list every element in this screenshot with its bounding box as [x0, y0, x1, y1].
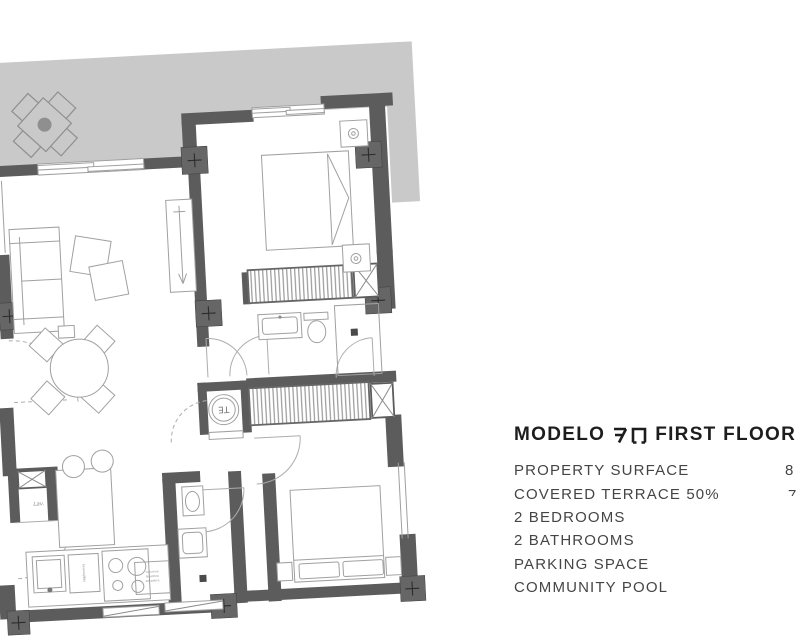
feature-label: 2 BEDROOMS: [514, 509, 626, 526]
page-title: MODELO FIRST FLOOR: [514, 424, 800, 446]
model-code-glyph: [613, 427, 647, 444]
feature-row: 2 BEDROOMS: [514, 506, 800, 529]
floor-plan-drawing: TE Lav. lavavajillas: [0, 0, 430, 640]
nightstand: [340, 120, 368, 147]
feature-row: PROPERTY SURFACE 8: [514, 459, 800, 482]
terrace-dining-set: [11, 91, 78, 158]
title-suffix: FIRST FLOOR: [655, 424, 796, 446]
feature-row: COMMUNITY POOL: [514, 576, 800, 599]
feature-label: COMMUNITY POOL: [514, 579, 668, 596]
bathroom1-fixtures: [258, 303, 382, 379]
spec-panel: MODELO FIRST FLOOR PROPERTY SURFACE 8 CO…: [514, 424, 800, 599]
feature-value: 7: [788, 487, 798, 496]
feature-label: 2 BATHROOMS: [514, 532, 635, 549]
nightstand: [342, 244, 370, 272]
floor-plan: TE Lav. lavavajillas: [0, 0, 430, 640]
feature-label: COVERED TERRACE 50%: [514, 486, 720, 503]
water-heater-label: TE: [217, 403, 230, 414]
bathroom2-fixtures: [176, 486, 209, 583]
kitchen-peninsula: [55, 450, 118, 548]
feature-row: COVERED TERRACE 50% 7: [514, 482, 800, 505]
living-room-furniture: [9, 224, 131, 341]
feature-row: 2 BATHROOMS: [514, 529, 800, 552]
feature-list: PROPERTY SURFACE 8 COVERED TERRACE 50% 7…: [514, 459, 800, 599]
laundry-column-label-3: secadora: [146, 578, 160, 583]
laundry-closet-label: Lav.: [33, 501, 45, 508]
feature-value: 8: [785, 462, 795, 479]
hall-closet: [166, 199, 197, 292]
feature-row: PARKING SPACE: [514, 553, 800, 576]
title-prefix: MODELO: [514, 424, 605, 446]
feature-label: PARKING SPACE: [514, 556, 649, 573]
dining-set: [27, 324, 118, 416]
feature-label: PROPERTY SURFACE: [514, 462, 689, 479]
bedroom1-furniture: [260, 120, 375, 276]
bedroom2-furniture: [273, 485, 402, 583]
water-heater-closet: TE: [207, 394, 243, 440]
page: { "panel": { "title_prefix": "MODELO", "…: [0, 0, 800, 640]
